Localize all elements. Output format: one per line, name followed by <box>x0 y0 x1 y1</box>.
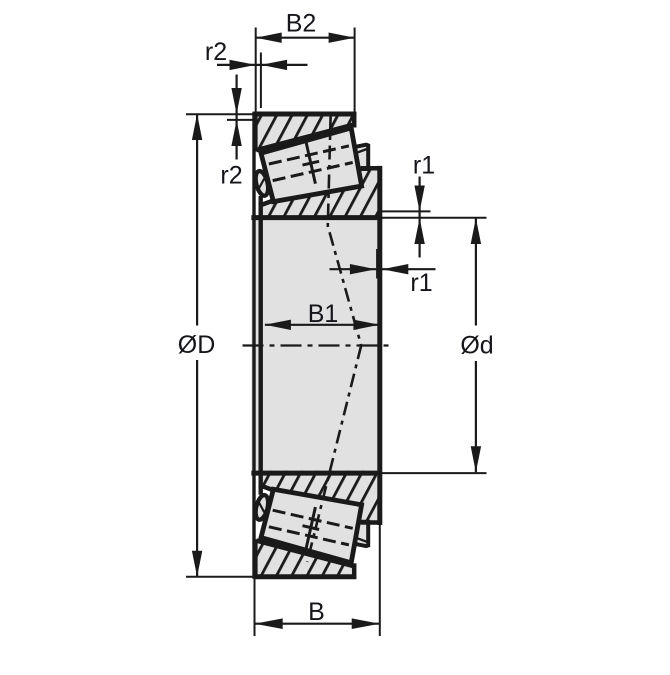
svg-text:B1: B1 <box>308 300 339 328</box>
svg-text:ØD: ØD <box>178 331 216 359</box>
svg-text:B: B <box>308 598 325 626</box>
svg-text:r2: r2 <box>220 162 242 190</box>
svg-text:r2: r2 <box>205 38 227 66</box>
svg-text:Ød: Ød <box>460 332 493 360</box>
svg-text:r1: r1 <box>410 269 432 297</box>
svg-text:r1: r1 <box>413 152 435 180</box>
svg-text:B2: B2 <box>286 10 317 38</box>
